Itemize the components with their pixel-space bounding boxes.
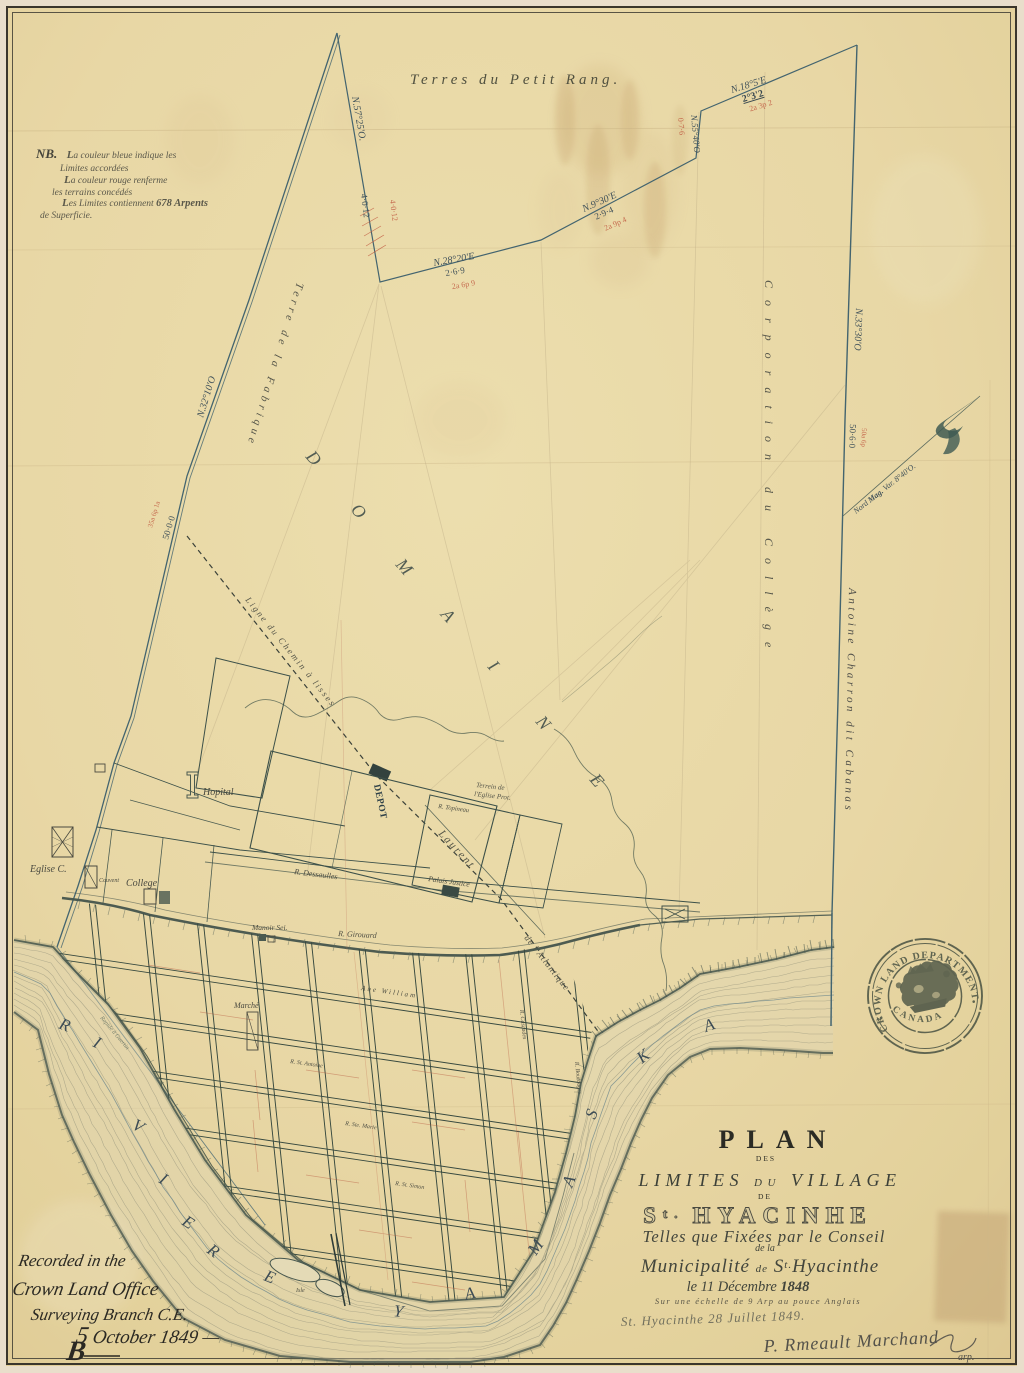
svg-text:N.33°30'O: N.33°30'O <box>852 307 865 351</box>
svg-text:Manoir Sei.: Manoir Sei. <box>251 923 288 932</box>
svg-text:de la: de la <box>755 1243 775 1254</box>
svg-text:Marché: Marché <box>233 1001 259 1010</box>
svg-text:Corporation du Collège: Corporation du Collège <box>762 280 776 659</box>
svg-text:50·6·0: 50·6·0 <box>847 424 858 449</box>
svg-text:DE: DE <box>758 1192 772 1201</box>
svg-text:Surveying Branch C.E.: Surveying Branch C.E. <box>30 1305 190 1324</box>
svg-text:DES: DES <box>756 1154 776 1163</box>
svg-text:0·7·6: 0·7·6 <box>676 117 686 135</box>
svg-text:Les Limites contiennent 678: Les Limites contiennent 678 Arpents <box>61 197 208 209</box>
svg-text:Eglise C.: Eglise C. <box>29 864 67 875</box>
svg-text:le 11 Décembre 1848: le 11 Décembre 1848 <box>687 1279 811 1295</box>
svg-text:50a 6p: 50a 6p <box>859 428 868 448</box>
svg-text:Hopital: Hopital <box>202 787 234 798</box>
svg-text:Crown Land Office: Crown Land Office <box>11 1279 161 1300</box>
svg-text:de Superficie.: de Superficie. <box>40 210 92 221</box>
svg-text:La couleur rouge renferme: La couleur rouge renferme <box>63 174 167 186</box>
svg-text:Recorded in the: Recorded in the <box>16 1251 128 1270</box>
svg-text:Couvent: Couvent <box>99 878 119 884</box>
svg-text:Terres du Petit Rang.: Terres du Petit Rang. <box>410 72 621 88</box>
svg-text:College: College <box>126 878 158 889</box>
svg-text:Isle: Isle <box>295 1288 305 1294</box>
svg-text:Sur une échelle de 9 Arp au po: Sur une échelle de 9 Arp au pouce Anglai… <box>655 1296 861 1306</box>
svg-text:5 October 1849 —: 5 October 1849 — <box>74 1322 223 1349</box>
svg-text:arp.: arp. <box>958 1352 974 1363</box>
svg-text:PLAN: PLAN <box>719 1125 838 1154</box>
svg-text:Limites accordées: Limites accordées <box>59 164 129 174</box>
